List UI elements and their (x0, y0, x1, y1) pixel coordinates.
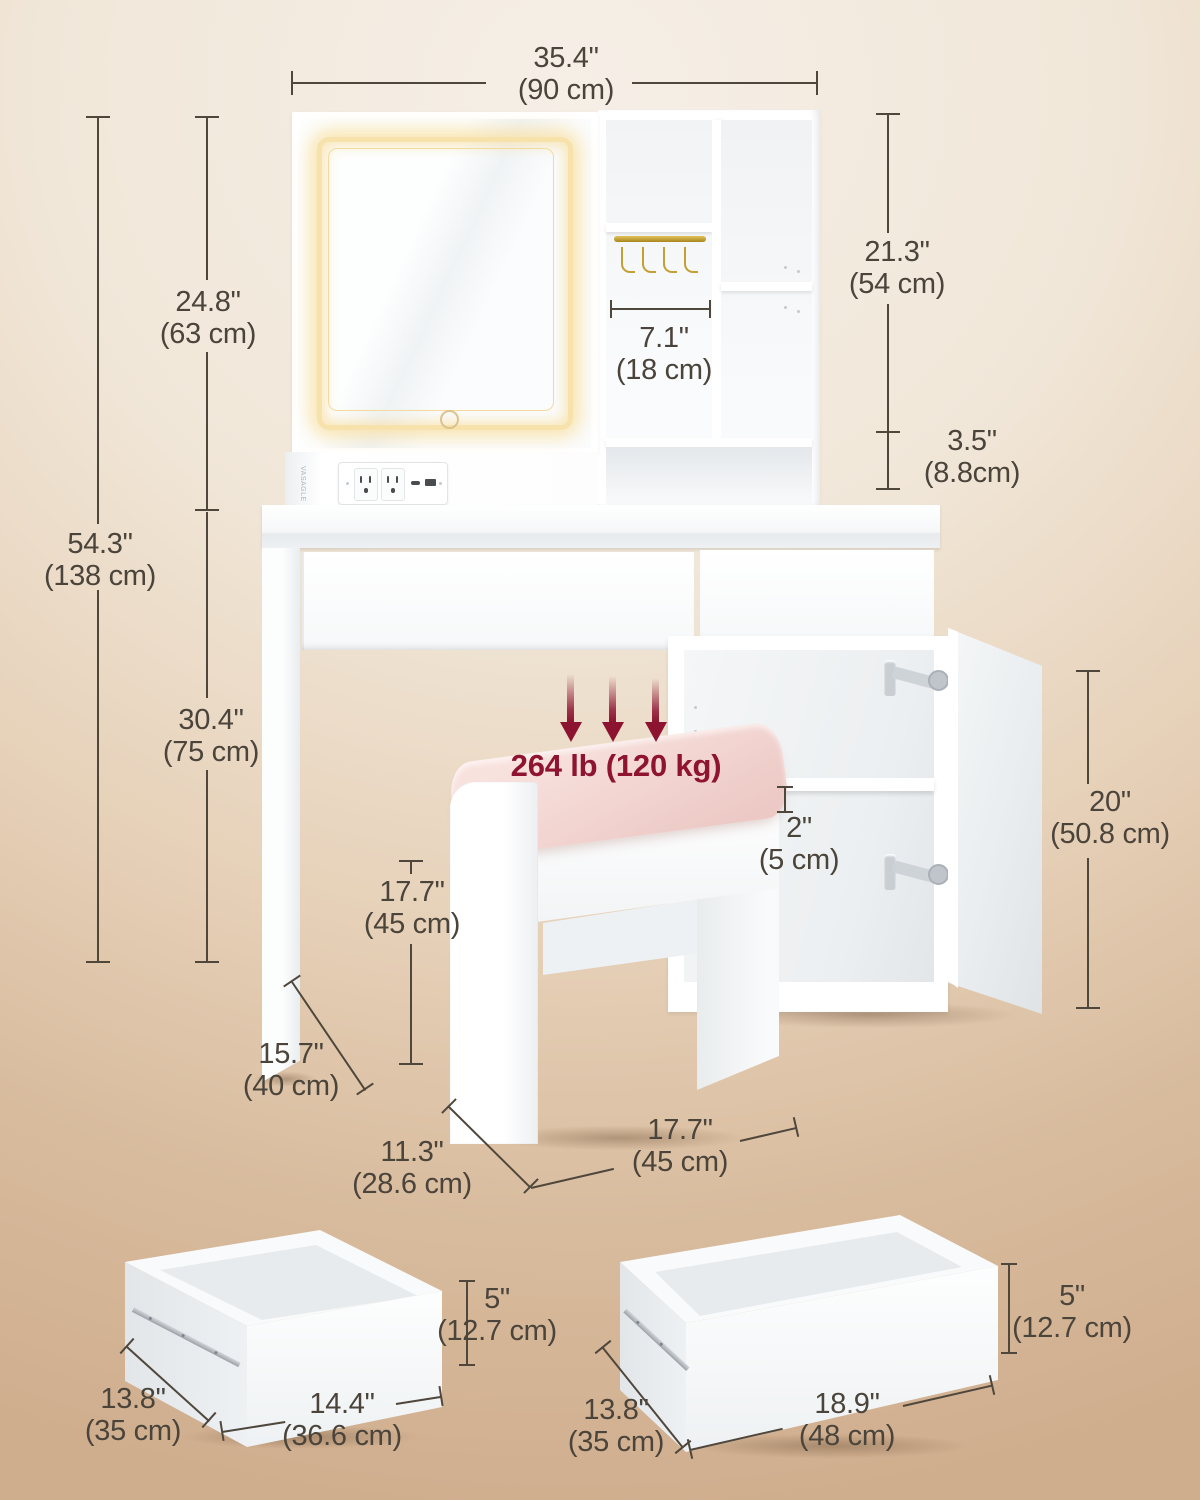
load-arrow-shaft (652, 678, 659, 722)
dim-tick (1001, 1352, 1017, 1354)
dim-line (206, 512, 208, 698)
dim-value-in: 18.9" (814, 1388, 879, 1420)
dim-line (97, 118, 99, 524)
dim-line (887, 115, 889, 233)
dim-value-in: 20" (1089, 786, 1131, 818)
dim-value-cm: (28.6 cm) (352, 1168, 472, 1200)
dim-tick (399, 1063, 423, 1065)
dim-tick (816, 71, 818, 95)
desk-left-leg (262, 548, 300, 1082)
power-led (346, 482, 349, 485)
dim-value-cm: (45 cm) (364, 908, 460, 940)
dim-tick (709, 300, 711, 318)
cabinet-door-edge (948, 628, 958, 988)
desktop (262, 505, 940, 548)
dim-value-cm: (36.6 cm) (282, 1420, 402, 1452)
dim-door-height: 20" (50.8 cm) (1050, 786, 1170, 851)
dim-value-cm: (35 cm) (568, 1426, 664, 1458)
dim-cushion-thickness: 2" (5 cm) (759, 812, 839, 877)
load-arrow-shaft (609, 676, 616, 722)
shelf-pin-hole (797, 310, 800, 313)
dim-tick (1076, 1007, 1100, 1009)
dim-value-cm: (63 cm) (160, 318, 256, 350)
dim-value-cm: (45 cm) (632, 1146, 728, 1178)
ac-outlet (381, 468, 405, 501)
dim-stool-depth: 11.3" (28.6 cm) (352, 1136, 472, 1201)
dim-value-in: 15.7" (258, 1038, 323, 1070)
dim-value-cm: (138 cm) (44, 560, 156, 592)
dim-line (611, 308, 711, 310)
dim-value-cm: (40 cm) (243, 1070, 339, 1102)
load-arrow-head (602, 722, 624, 742)
dim-line (887, 433, 889, 489)
door-hinge-bottom (884, 848, 948, 896)
dim-overall-height: 54.3" (138 cm) (44, 528, 156, 593)
usb-c-port (411, 481, 420, 485)
hutch-shelf (721, 282, 812, 291)
hutch-bottom-shelf (606, 438, 812, 447)
jewelry-hook (642, 247, 656, 273)
dim-value-cm: (75 cm) (163, 736, 259, 768)
dim-value-cm: (48 cm) (799, 1420, 895, 1452)
cabinet-door-open (948, 628, 1042, 1014)
weight-capacity-label: 264 lb (120 kg) (511, 748, 722, 784)
jewelry-hook (663, 247, 677, 273)
dim-tick (195, 509, 219, 511)
screw (439, 482, 442, 485)
dim-value-in: 24.8" (175, 286, 240, 318)
dim-value-in: 13.8" (100, 1383, 165, 1415)
load-arrow-head (560, 722, 582, 742)
dim-tick (876, 488, 900, 490)
load-arrow-head (645, 722, 667, 742)
dim-value-in: 17.7" (647, 1114, 712, 1146)
dim-value-in: 17.7" (379, 876, 444, 908)
dim-tick (86, 961, 110, 963)
dim-value-in: 54.3" (67, 528, 132, 560)
dim-line (1008, 1265, 1010, 1353)
dim-drawer-large-depth: 13.8" (35 cm) (568, 1394, 664, 1459)
dim-value-cm: (54 cm) (849, 268, 945, 300)
dim-line (632, 82, 818, 84)
power-strip (338, 462, 448, 505)
dim-line (531, 1168, 614, 1189)
hutch-compartment-right (721, 120, 812, 438)
led-inner-line (328, 148, 554, 411)
dim-stool-height: 17.7" (45 cm) (364, 876, 460, 941)
dim-tick (459, 1364, 475, 1366)
dim-line (1087, 858, 1089, 1008)
dim-value-cm: (12.7 cm) (437, 1315, 557, 1347)
dim-line (206, 118, 208, 280)
dim-tick (195, 961, 219, 963)
dim-line (410, 862, 412, 874)
shelf-pin-hole (694, 706, 697, 709)
dim-value-in: 35.4" (533, 42, 598, 74)
product-dimension-diagram: VASAGLE (0, 0, 1200, 1500)
dim-value-in: 5" (484, 1283, 510, 1315)
dim-value-cm: (8.8cm) (924, 457, 1020, 489)
dim-value-cm: (50.8 cm) (1050, 818, 1170, 850)
dim-value-in: 13.8" (583, 1394, 648, 1426)
dim-desk-height: 30.4" (75 cm) (163, 704, 259, 769)
usb-a-port (425, 479, 436, 486)
jewelry-hook (684, 247, 698, 273)
dim-value-cm: (5 cm) (759, 844, 839, 876)
dim-line (410, 944, 412, 1064)
dim-value-in: 3.5" (947, 425, 996, 457)
jewelry-rod (614, 236, 706, 242)
stool-left-leg (450, 782, 538, 1144)
dim-compartment-width: 7.1" (18 cm) (616, 322, 712, 387)
dim-tick (595, 1340, 612, 1354)
dim-hutch-height: 21.3" (54 cm) (849, 236, 945, 301)
hutch-open-slot (606, 447, 812, 505)
touch-control-icon (440, 410, 459, 429)
dim-value-cm: (18 cm) (616, 354, 712, 386)
brand-logo: VASAGLE (299, 466, 306, 502)
desk-drawer-front-left (302, 552, 694, 650)
dim-line (97, 590, 99, 962)
desk-drawer-front-right (700, 550, 934, 642)
dim-value-in: 14.4" (309, 1388, 374, 1420)
dim-line (292, 82, 486, 84)
dim-value-in: 7.1" (639, 322, 688, 354)
dim-mirror-height: 24.8" (63 cm) (160, 286, 256, 351)
ac-outlet (354, 468, 378, 501)
dim-drawer-large-height: 5" (12.7 cm) (1012, 1280, 1132, 1345)
dim-line (206, 352, 208, 510)
dim-value-in: 21.3" (864, 236, 929, 268)
load-arrow-shaft (567, 674, 574, 722)
dim-value-in: 11.3" (380, 1136, 443, 1168)
dim-shelf-clearance: 3.5" (8.8cm) (924, 425, 1020, 490)
shelf-pin-hole (784, 306, 787, 309)
dim-value-cm: (90 cm) (518, 74, 614, 106)
hutch-divider (712, 120, 721, 438)
shelf-pin-hole (797, 270, 800, 273)
dim-value-in: 30.4" (178, 704, 243, 736)
hutch-shelf (606, 223, 712, 232)
riser-panel: VASAGLE (285, 452, 598, 508)
dim-line (206, 770, 208, 962)
dim-drawer-small-width: 14.4" (36.6 cm) (282, 1388, 402, 1453)
dim-stool-width: 17.7" (45 cm) (632, 1114, 728, 1179)
dim-line (784, 788, 786, 812)
dim-line (887, 304, 889, 432)
dim-value-in: 5" (1059, 1280, 1085, 1312)
dim-drawer-small-depth: 13.8" (35 cm) (85, 1383, 181, 1448)
dim-line (1087, 672, 1089, 784)
dim-overall-width: 35.4" (90 cm) (518, 42, 614, 107)
mirror-frame (292, 112, 598, 455)
shelf-pin-hole (784, 266, 787, 269)
dim-drawer-large-width: 18.9" (48 cm) (799, 1388, 895, 1453)
dim-tick (356, 1083, 374, 1096)
door-hinge-top (884, 654, 948, 702)
dim-value-cm: (12.7 cm) (1012, 1312, 1132, 1344)
dim-value-cm: (35 cm) (85, 1415, 181, 1447)
dim-desk-depth: 15.7" (40 cm) (243, 1038, 339, 1103)
dim-value-in: 2" (786, 812, 812, 844)
dim-drawer-small-height: 5" (12.7 cm) (437, 1283, 557, 1348)
jewelry-hook (621, 247, 635, 273)
hutch-compartment-left (606, 120, 712, 438)
